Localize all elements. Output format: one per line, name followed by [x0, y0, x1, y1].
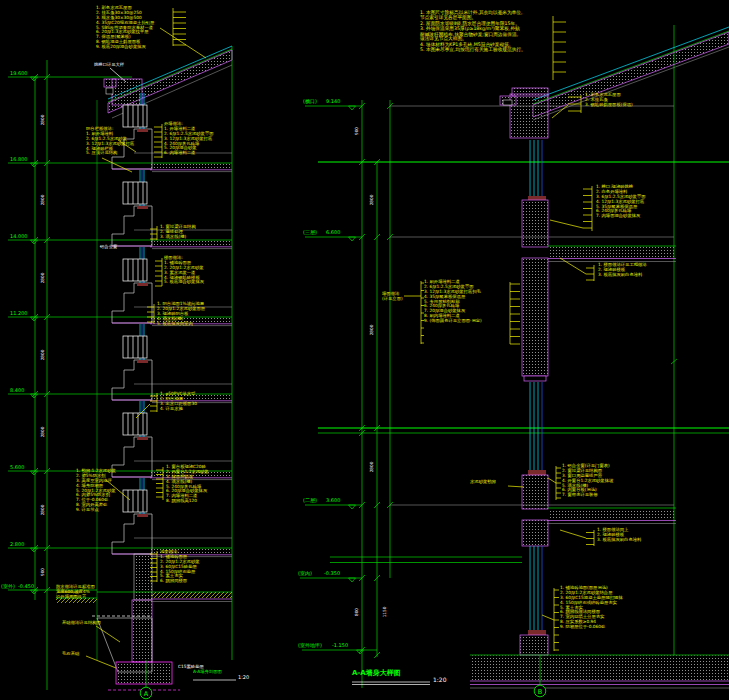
svg-text:2800: 2800: [369, 324, 374, 335]
right-level-0: 9.140: [326, 98, 340, 104]
svg-text:2800: 2800: [40, 349, 45, 360]
left-level-3: 11.200: [10, 310, 28, 316]
left-lintel-notes: 1. 窗过梁详见结构2. 塞缝处理3. 滴水线(槽): [160, 224, 196, 239]
left-level-0: 19.600: [10, 70, 28, 76]
right-finish-label: 墙面做法(详见立面): [382, 291, 403, 301]
svg-text:2800: 2800: [40, 426, 45, 437]
svg-text:2800: 2800: [369, 461, 374, 472]
floor-module: [97, 401, 232, 480]
right-general-notes: 1. 本图尺寸除标高以米计外,其余均以毫米为单位, 节点索引详见各层平面图。2.…: [420, 10, 526, 53]
right-floor-callout-1: 1. 楼面做法详见工程做法2. 现浇砼楼板3. 板底抹灰刷白色涂料: [598, 262, 647, 277]
note-line: 7. 内墙面混合砂浆抹灰: [596, 214, 646, 219]
note-line: 6. 踢脚同楼面: [160, 579, 200, 584]
right-ground-slab: [470, 655, 729, 688]
left-roof-notes: 1. 彩色水泥瓦屋面2. 挂瓦条30×30@2503. 顺水条30×30@500…: [96, 5, 154, 50]
note-line: 9. (饰面颜色详见立面图·另定): [424, 319, 482, 324]
right-level-3: -0.350: [324, 570, 340, 576]
left-level-1: 16.800: [10, 156, 28, 162]
right-detail-drawing: (檐口) 9.140 (三层) 6.600 (二层) 3.600 (室内) -0…: [298, 16, 729, 697]
svg-text:2800: 2800: [40, 504, 45, 515]
left-dimension-numbers: 2800 2800 2800 2800 2800 2800 900: [40, 114, 45, 576]
note-line: (详见立面): [382, 296, 403, 301]
right-floor-callout-2: 1. 楼面做法同上2. 现浇砼楼板3. 板底抹灰刷白色涂料: [597, 527, 641, 542]
note-line: 9. 板底20厚混合砂浆抹灰: [96, 45, 154, 50]
left-section-drawing: 19.600 16.800 14.000 11.200 8.400 5.600 …: [1, 8, 232, 699]
right-level-1: 6.600: [326, 229, 340, 235]
left-level-5: 5.600: [10, 464, 24, 470]
left-plinth-wall: [132, 554, 152, 662]
svg-text:2800: 2800: [40, 272, 45, 283]
left-floor-notes: 楼面做法:1. 铺地砖面层2. 20厚1:2水泥砂浆3. 素水泥浆一道4. 现浇…: [164, 255, 204, 285]
svg-text:1150: 1150: [382, 606, 387, 617]
left-sill-notes: 1. 窗台板现浇C20砼2. 外窗台1:2水泥砂浆3. 抹面押斜坡4. 滴水线(…: [166, 464, 209, 504]
left-wall-notes: 外墙做法:1. 外墙涂料二道2. 6厚1:2.5水泥砂浆罩面3. 12厚1:3水…: [164, 121, 214, 156]
right-cornice: [500, 88, 548, 138]
right-roof-callout: 1. 彩色水泥瓦屋面2. 木挂瓦条3. 钢筋砼斜屋面板(保温): [585, 92, 633, 107]
right-drawing-title: A-A墙身大样图: [352, 668, 401, 678]
right-level-2: 3.600: [326, 497, 340, 503]
left-plinth-notes: 1. 勒脚:1:2水泥砂浆2. 掺5%防水剂3. 高度至室内地坪4. 墙身防潮层…: [76, 468, 116, 513]
left-slab-notes: 1. 阳台地面1%坡向地漏2. 20厚1:2水泥砂浆面层3. 现浇砼阳台板4. …: [157, 301, 205, 326]
svg-text:900: 900: [354, 127, 359, 135]
axis-letter-a: A: [144, 690, 149, 698]
svg-text:2800: 2800: [369, 194, 374, 205]
svg-text:900: 900: [40, 568, 45, 576]
right-level-4: -1.150: [332, 642, 348, 648]
note-line: 3. 滴水线(槽): [160, 234, 196, 239]
left-level-6: 2.800: [10, 541, 24, 547]
left-drawing-title: A-A墙身剖面图: [193, 669, 222, 675]
axis-letter-b: B: [538, 688, 542, 696]
cad-canvas: 19.600 16.800 14.000 11.200 8.400 5.600 …: [0, 0, 729, 700]
note-line: 4. 详见水施: [160, 406, 197, 411]
note-line: 5. 板底抹灰同室内: [157, 321, 205, 326]
note-line: 5. 压顶详见结构: [86, 151, 134, 156]
note-line: 3. 板底抹灰刷白色涂料: [597, 537, 641, 542]
right-level-markers: (檐口) 9.140 (三层) 6.600 (二层) 3.600 (室内) -0…: [298, 98, 674, 654]
left-drawing-scale: 1:20: [238, 674, 249, 680]
note-line: 9. 防潮层位于-0.060处: [560, 625, 623, 630]
left-drain-notes: 1. φ50PVC落水管2. 阳台地漏3. 出水口距板面304. 详见水施: [160, 391, 197, 411]
right-drawing-scale: 1:20: [433, 676, 446, 683]
left-balcony-notes: 阳台栏板做法:1. 刷外墙涂料2. 6厚1:2.5水泥砂浆3. 12厚1:3水泥…: [86, 126, 134, 156]
right-dimension-numbers: 900 2800 2800 2800 800 1150: [354, 127, 387, 618]
left-level-7-name: (室外): [1, 583, 15, 589]
note-line: 6. 内墙涂料二道: [164, 151, 214, 156]
note-line: 5. 板底混合砂浆抹灰: [164, 280, 204, 285]
note-line: 3. 板底抹灰刷白色涂料: [598, 272, 647, 277]
left-ground-notes: 地面做法:1. 铺地砖面层2. 20厚1:2水泥砂浆3. 60厚C15砼垫层4.…: [160, 549, 200, 584]
right-level-3-name: (室内): [298, 570, 312, 576]
right-plinth-label: 水泥砂浆勒脚: [470, 479, 496, 484]
right-leaders: [404, 16, 594, 651]
note-line: 3. 钢筋砼斜屋面板(保温): [585, 102, 633, 107]
left-footing-label: 毛石基础: [62, 651, 79, 656]
left-level-4: 8.400: [10, 387, 24, 393]
svg-text:2800: 2800: [40, 194, 45, 205]
right-level-1-name: (三层): [303, 229, 317, 235]
note-line: 沿外墙周圈设置: [56, 594, 95, 599]
right-ground-callout: 1. 铺地砖地面(面层另选)2. 20厚1:2水泥砂浆结合层3. 60厚C15混…: [560, 585, 623, 630]
right-level-2-name: (二层): [303, 497, 317, 503]
left-foundation-note: 基础做法详见结构图: [62, 620, 101, 625]
right-level-0-name: (檐口): [303, 98, 317, 105]
svg-text:2800: 2800: [40, 114, 45, 125]
drawing-titles-rules: [193, 680, 430, 685]
note-line: 8. 踢脚线高120: [166, 499, 209, 504]
left-window-label: 铝合金窗: [100, 244, 117, 249]
note-line: 7. 窗帘盒详见装修: [562, 493, 613, 498]
right-finish-callout: 1. 刷外墙涂料二道2. 6厚1:2.5水泥砂浆罩面3. 12厚1:3水泥砂浆打…: [424, 279, 482, 324]
note-line: 5. 本图未尽事宜,均按现行有关施工验收规范执行。: [420, 48, 526, 53]
right-level-4-name: (室外地坪): [298, 642, 322, 648]
right-window-callout: 1. 铝合金窗(详见门窗表)2. 窗过梁详见结构图3. 窗口周边塞缝严密4. 外…: [562, 463, 613, 498]
left-level-7: -0.450: [18, 583, 34, 589]
right-eave-callout: 1. 檐口:现浇砼挑檐2. 白色外墙涂料3. 6厚1:2.5水泥砂浆罩面4. 1…: [596, 184, 646, 219]
note-line: 9. 详见节点: [76, 508, 116, 513]
left-eave-label: 挑檐口详见大样: [94, 62, 124, 67]
svg-text:800: 800: [354, 608, 359, 616]
left-level-2: 14.000: [10, 233, 28, 239]
left-apron-notes: 散水做法详见标准图宽度600,坡度4%沿外墙周圈设置: [56, 584, 95, 599]
